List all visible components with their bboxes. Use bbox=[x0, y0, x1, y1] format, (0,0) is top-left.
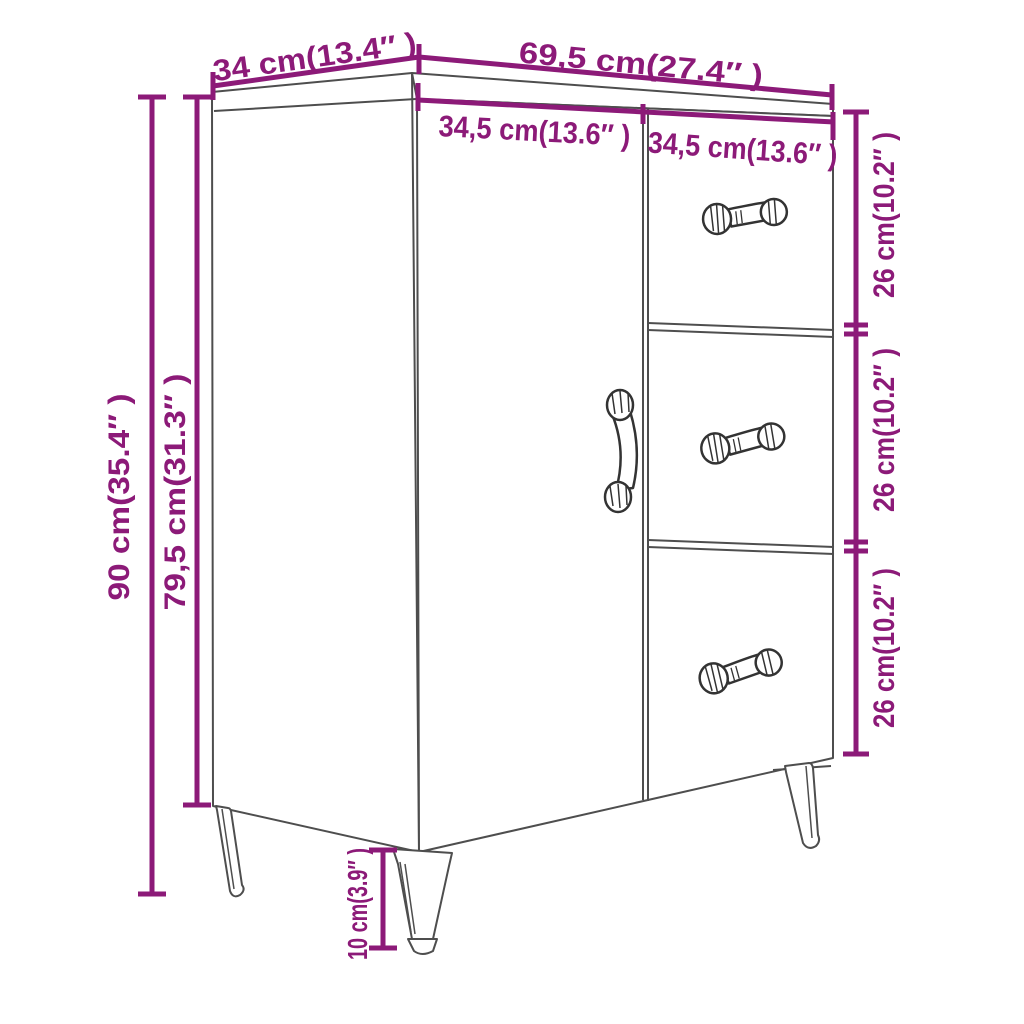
leg-front-middle bbox=[393, 849, 452, 939]
label-body-height: 79,5 cm(31.3″ ) bbox=[159, 374, 192, 611]
sideboard-dimension-drawing: 34 cm(13.4″ ) 69,5 cm(27.4″ ) 34,5 cm(13… bbox=[0, 0, 1024, 1024]
leg-front-right bbox=[785, 763, 819, 848]
label-drawer-top-height: 26 cm(10.2″ ) bbox=[868, 132, 901, 298]
label-drawer-middle-height: 26 cm(10.2″ ) bbox=[868, 348, 901, 512]
cabinet-body bbox=[212, 73, 834, 852]
label-drawer-bottom-height: 26 cm(10.2″ ) bbox=[868, 568, 901, 728]
product-dimension-diagram: 34 cm(13.4″ ) 69,5 cm(27.4″ ) 34,5 cm(13… bbox=[0, 0, 1024, 1024]
cabinet-side-panel bbox=[212, 73, 419, 852]
label-overall-height: 90 cm(35.4″ ) bbox=[103, 394, 136, 601]
leg-back-left bbox=[216, 806, 244, 896]
label-leg-height: 10 cm(3.9″ ) bbox=[342, 848, 373, 960]
leg-front-middle-foot bbox=[408, 939, 437, 954]
